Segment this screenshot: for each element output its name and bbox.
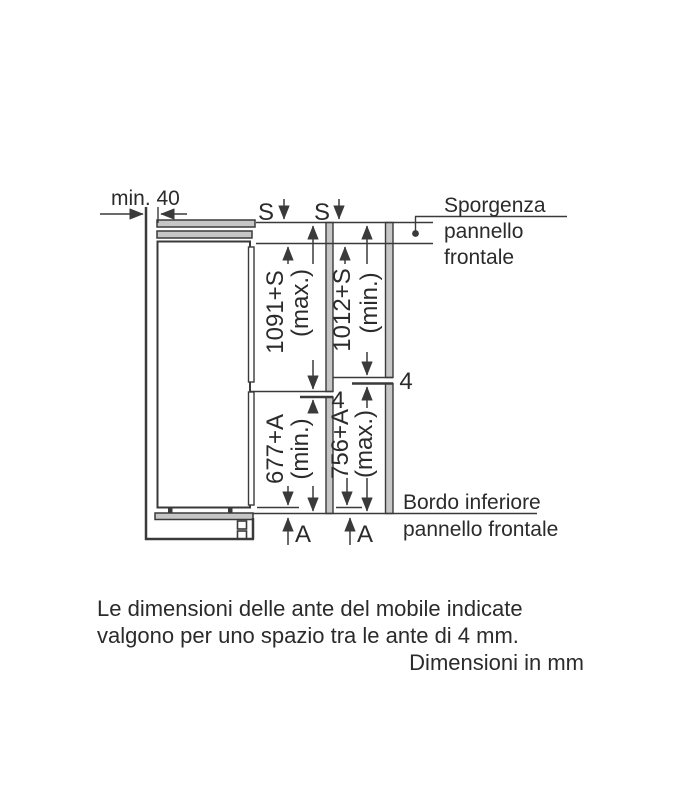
- cabinet-top-panel: [157, 220, 255, 227]
- sporgenza-line3: frontale: [444, 246, 514, 269]
- front-panel-right-upper: [386, 223, 394, 378]
- dim-lower-left-value: 677+A: [262, 414, 289, 484]
- a-label-left: A: [295, 521, 311, 548]
- bordo-line2: pannello frontale: [403, 518, 558, 541]
- sporgenza-leader-dot: [412, 230, 419, 237]
- appliance-cross-section: [145, 207, 255, 540]
- dim-upper-left-value: 1091+S: [262, 270, 289, 353]
- s-label-right: S: [314, 199, 330, 226]
- sporgenza-callout: Sporgenza pannello frontale: [444, 194, 546, 269]
- dim-lower-left-qualifier: (min.): [287, 418, 314, 479]
- hinge-bracket-upper: [238, 521, 247, 529]
- front-panel-right-lower: [386, 384, 394, 514]
- footnote: Le dimensioni delle ante del mobile indi…: [97, 596, 584, 675]
- footnote-line2: valgono per uno spazio tra le ante di 4 …: [97, 623, 519, 648]
- appliance-door-upper: [249, 247, 255, 382]
- min-clearance-label: min. 40: [111, 187, 180, 210]
- dim-lower-right-value: 756+A: [327, 409, 354, 479]
- gap-label-left: 4: [331, 387, 344, 414]
- installation-diagram: min. 40 S S 1091+S (max.) 1012+S (min.) …: [0, 0, 694, 800]
- a-label-right: A: [357, 521, 373, 548]
- dim-upper-right-qualifier: (min.): [356, 272, 383, 333]
- appliance-foot-left: [168, 507, 173, 513]
- sporgenza-line2: pannello: [444, 220, 523, 243]
- appliance-base-strip: [155, 513, 253, 520]
- bordo-callout: Bordo inferiore pannello frontale: [403, 491, 558, 541]
- appliance-door-lower: [249, 392, 255, 505]
- appliance-top-panel: [157, 231, 252, 238]
- gap-label-right: 4: [399, 368, 412, 395]
- dim-upper-left-qualifier: (max.): [287, 269, 314, 337]
- bordo-line1: Bordo inferiore: [403, 491, 541, 514]
- sporgenza-line1: Sporgenza: [444, 194, 546, 217]
- dim-lower-right-qualifier: (max.): [351, 410, 378, 478]
- footnote-units: Dimensioni in mm: [409, 650, 584, 675]
- s-label-left: S: [258, 199, 274, 226]
- appliance-body: [158, 242, 251, 508]
- installation-diagram-page: min. 40 S S 1091+S (max.) 1012+S (min.) …: [0, 0, 694, 800]
- footnote-line1: Le dimensioni delle ante del mobile indi…: [97, 596, 523, 621]
- dim-upper-right-value: 1012+S: [329, 268, 356, 351]
- appliance-foot-right: [228, 507, 233, 513]
